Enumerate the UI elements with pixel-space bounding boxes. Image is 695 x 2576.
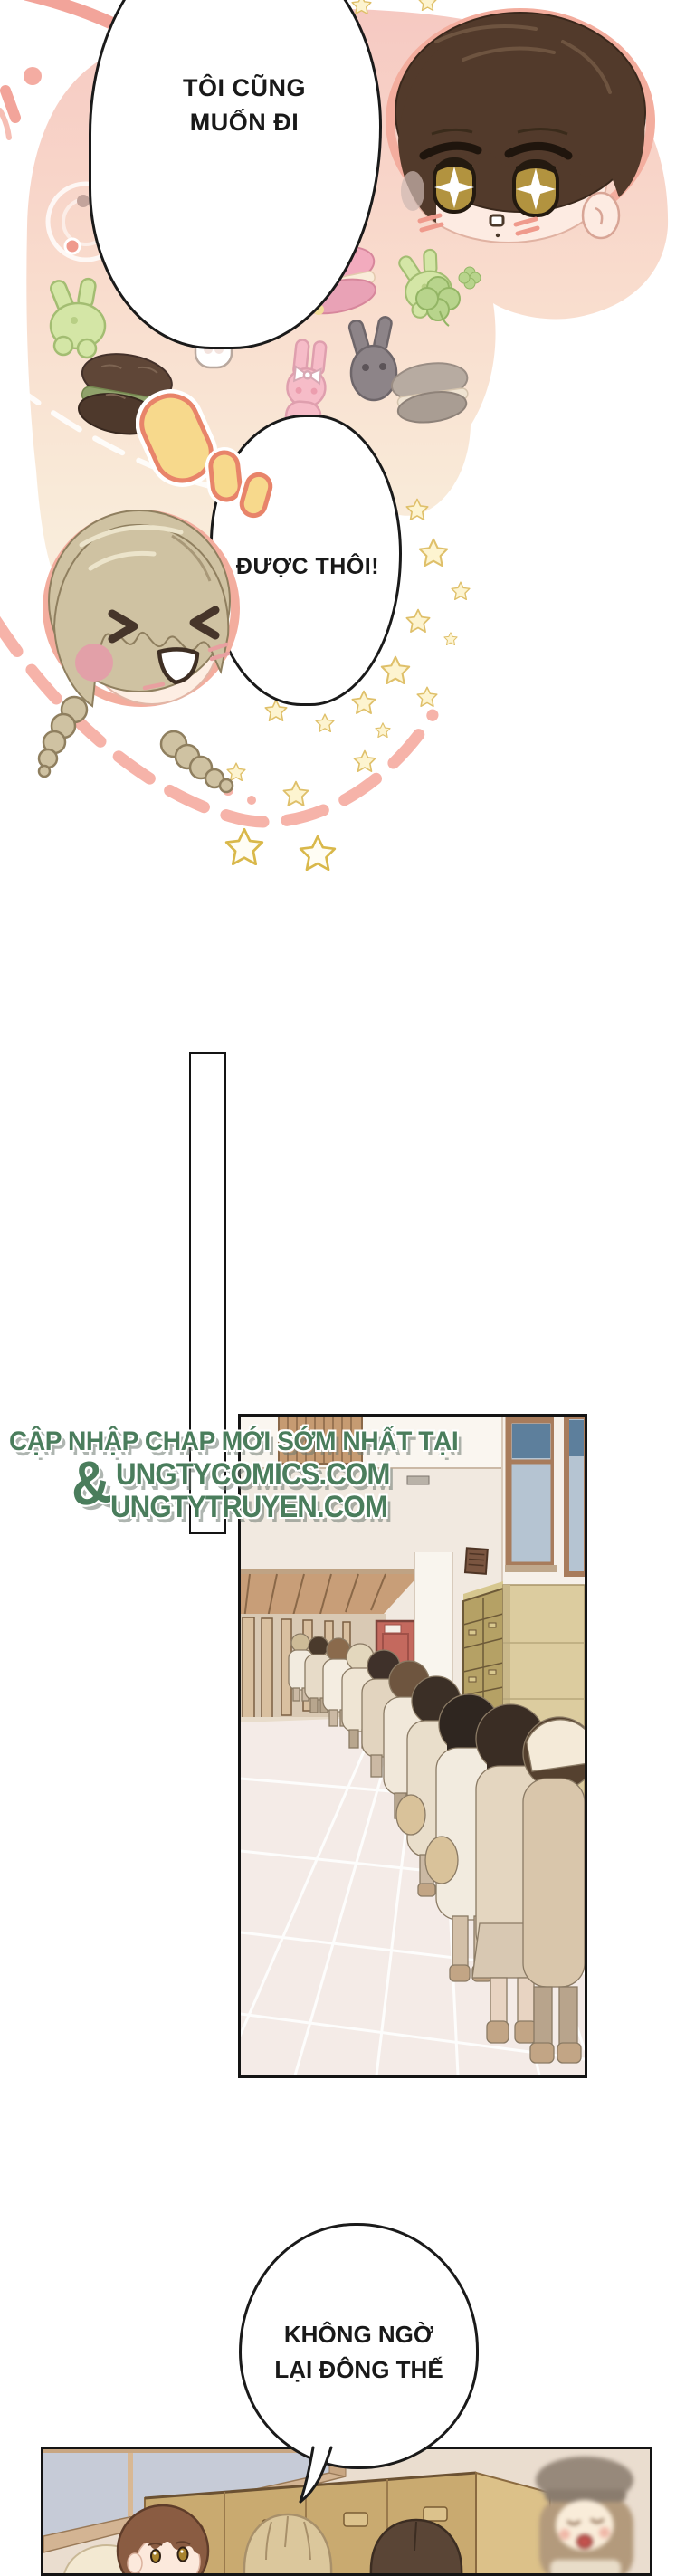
- chibi-girl-head: [36, 482, 249, 794]
- wall-sign: [407, 1476, 429, 1484]
- watermark-ampersand: &: [67, 1445, 114, 1520]
- watermark-site-1: UNGTYCOMICS.COM: [116, 1457, 389, 1493]
- watermark-site-2: UNGTYTRUYEN.COM: [110, 1490, 387, 1525]
- girl-braid-right: [161, 731, 233, 792]
- boy-eye-left: [434, 159, 474, 212]
- hallway-beam: [241, 1569, 420, 1574]
- boy-eye-right: [514, 161, 557, 215]
- hallway-windows: [505, 1417, 585, 1574]
- speech-bubble-2-text: ĐƯỢC THÔI!: [222, 554, 394, 580]
- wall-speaker: [465, 1548, 488, 1574]
- comic-page: TÔI CŨNG MUỐN ĐI ĐƯỢC THÔI!: [0, 0, 695, 2576]
- speech-bubble-1-text: TÔI CŨNG MUỐN ĐI: [136, 71, 353, 139]
- chibi-boy-head: [382, 5, 664, 250]
- character-blurred-girl: [514, 2449, 652, 2576]
- speech-bubble-3-text: KHÔNG NGỜ LẠI ĐÔNG THẾ: [248, 2317, 470, 2388]
- speech-bubble-tail: [295, 2444, 342, 2507]
- girl-braid-left: [39, 697, 87, 777]
- girl-blush: [75, 644, 113, 682]
